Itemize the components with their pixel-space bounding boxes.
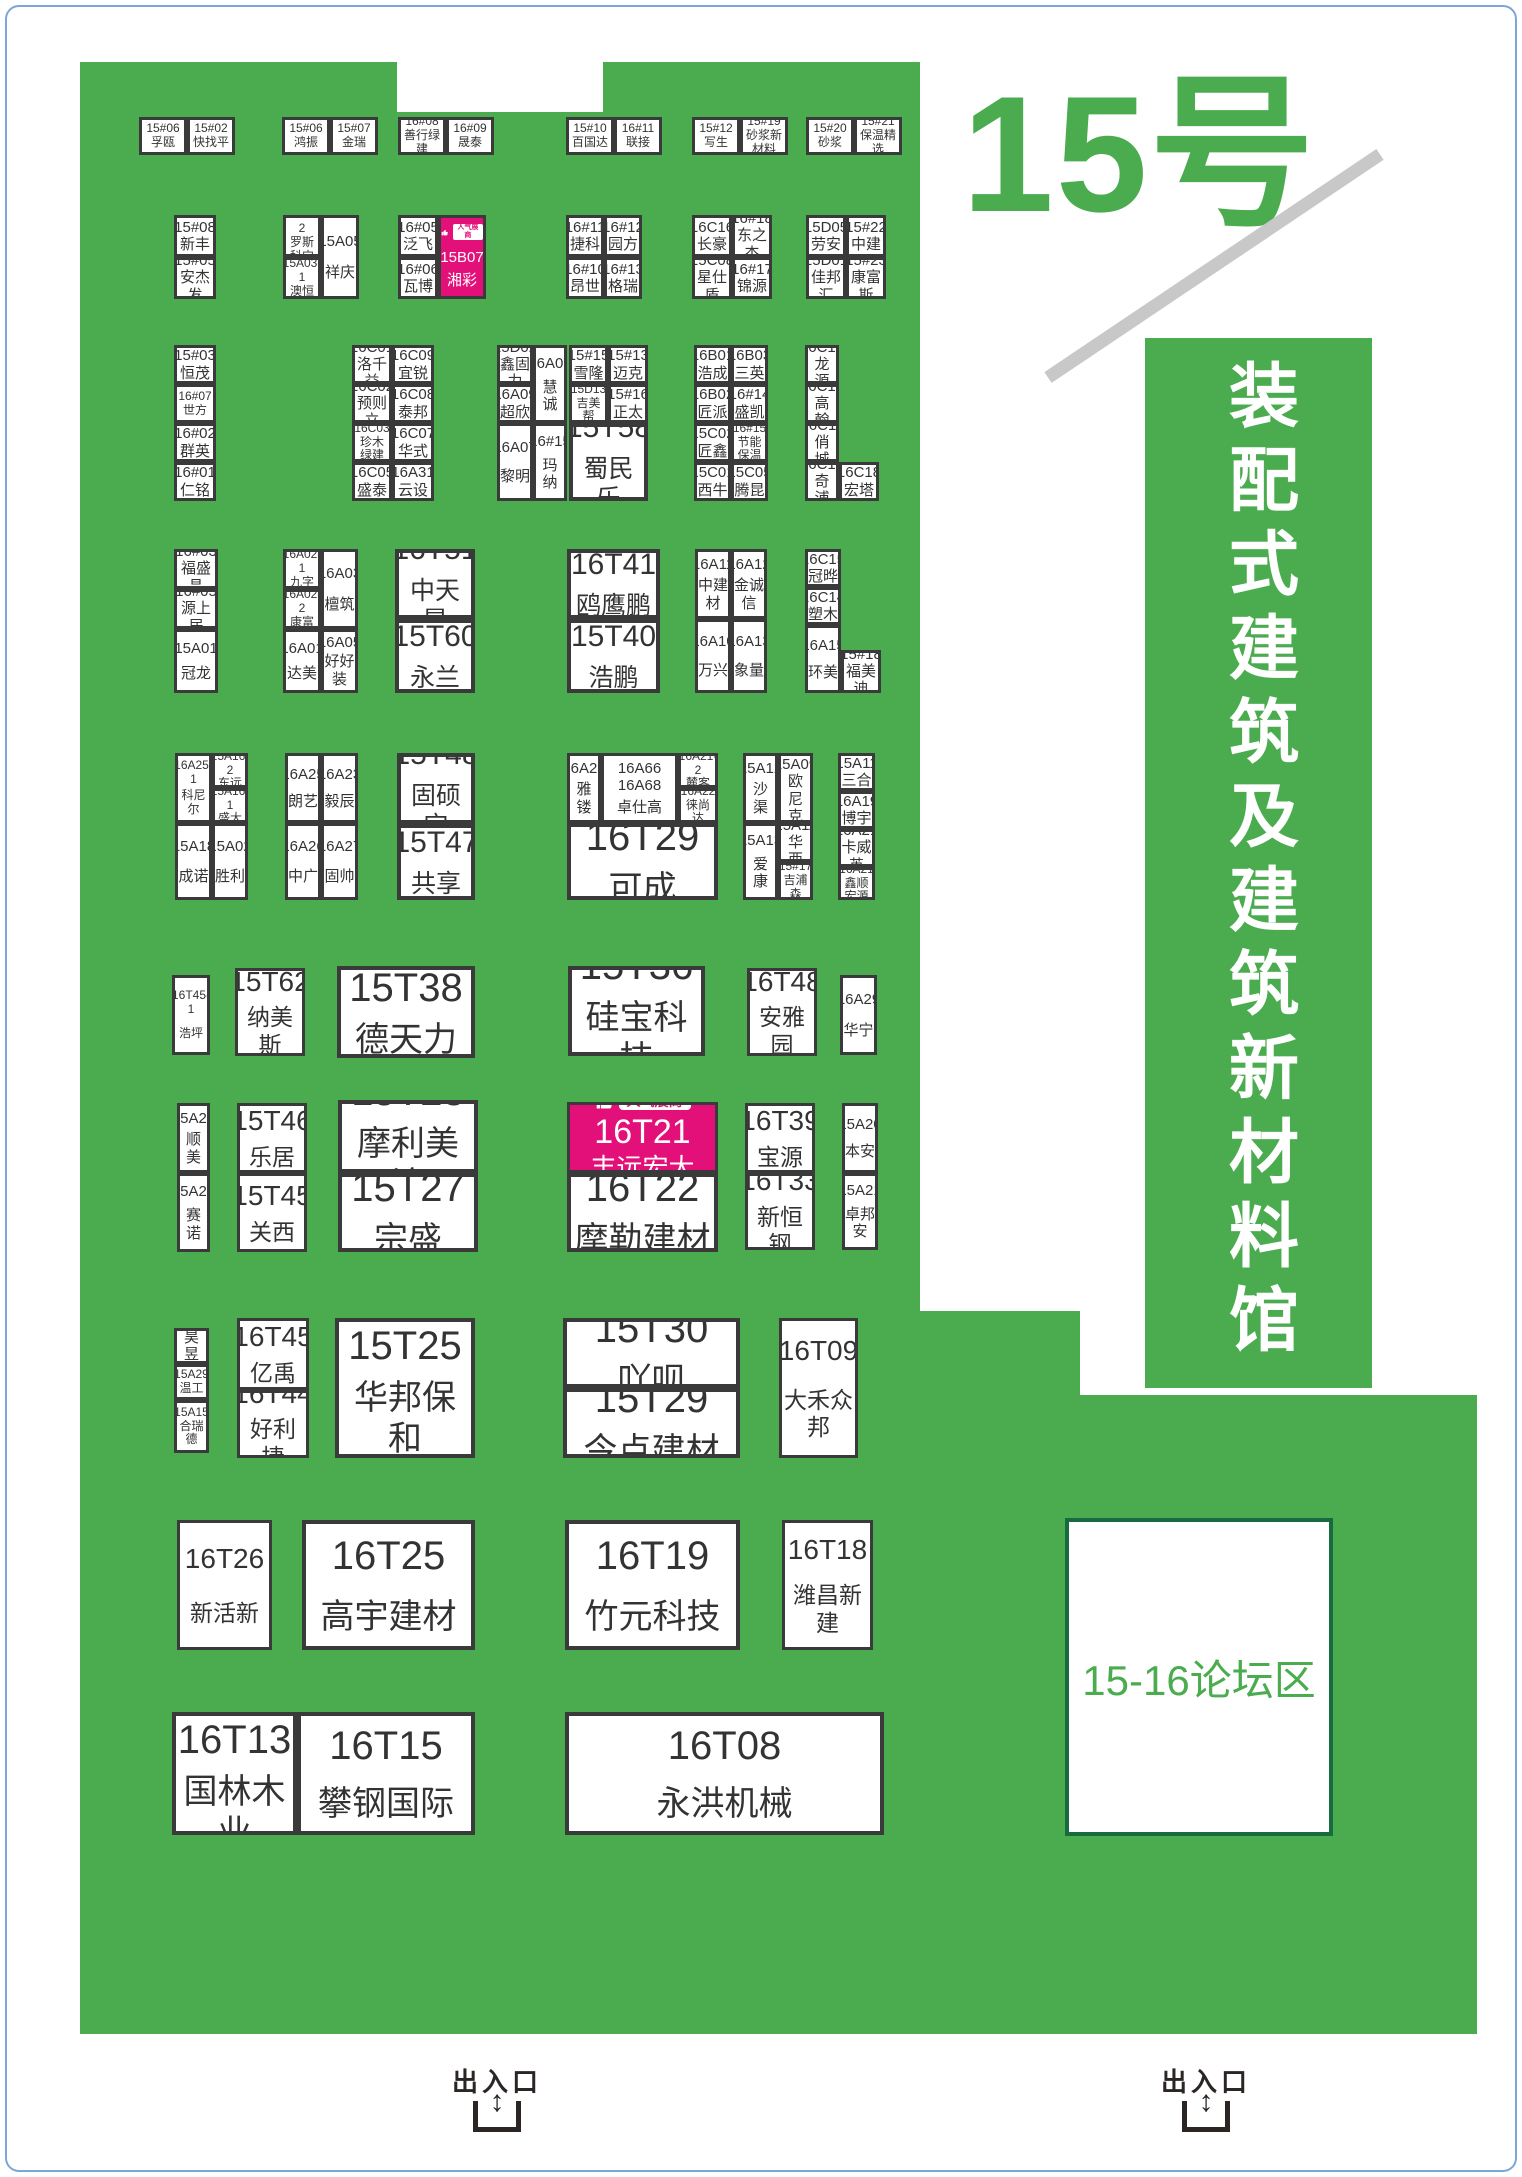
booth-company-name: 砂浆新材料 xyxy=(743,129,785,155)
booth-code: 15T29 xyxy=(595,1388,708,1423)
booth-code: 16A11 xyxy=(695,556,731,573)
booth-code: 15A27 xyxy=(177,1183,210,1200)
booth-company-name: 节能保温 xyxy=(734,436,765,462)
booth-code: 15T47 xyxy=(397,825,475,861)
booth-code: 15A16-2 xyxy=(212,753,248,777)
booth-company-name: 金瑞 xyxy=(342,136,366,150)
booth-code: 16T19 xyxy=(596,1532,709,1580)
booth-company-name: 冠龙 xyxy=(181,665,211,682)
booth-code: 15C02 xyxy=(694,425,731,442)
booth-16T09: 16T09大禾众邦 xyxy=(779,1318,858,1458)
booth-company-name: 中广 xyxy=(288,868,318,885)
booth-code: 16C15 xyxy=(805,551,841,568)
booth-15T47: 15T47共享 xyxy=(397,824,475,900)
booth-company-name: 高翰 xyxy=(808,395,836,423)
booth-16A06: 16A06慧诚 xyxy=(533,345,567,423)
booth-company-name: 华西 xyxy=(781,834,810,862)
booth-16C18: 16C18宏塔 xyxy=(839,462,879,501)
booth-code: 16T09 xyxy=(779,1334,858,1368)
booth-16C12: 16C12高翰 xyxy=(805,384,839,423)
booth-company-name: 俏城 xyxy=(808,434,836,462)
booth-code: 15T28 xyxy=(351,1100,464,1116)
booth-company-name: 湘彩 xyxy=(447,272,477,289)
booth-code: 16C09 xyxy=(392,347,434,364)
booth-15D13: 15D13吉美帮 xyxy=(569,384,608,423)
booth-15T27: 15T27宗盛 xyxy=(338,1173,478,1252)
booth-code: 15T58 xyxy=(569,423,648,446)
hall-name-text: 装配式建筑及建筑新材料馆 xyxy=(1224,359,1294,1367)
booth-company-name: 丰远宏大 xyxy=(590,1154,694,1173)
booth-code: 15T45 xyxy=(237,1179,307,1213)
booth-code: 15#23 xyxy=(846,257,886,269)
booth-15A23: 15A23顺美 xyxy=(177,1103,210,1173)
booth-code: 15A03-1 xyxy=(283,257,321,285)
booth-company-name: 瓦博 xyxy=(403,278,433,295)
booth-code: 16A20 xyxy=(567,760,601,777)
booth-code: 15C08 xyxy=(692,257,732,269)
booth-code: 16C11 xyxy=(805,423,839,434)
booth-15#20: 15#20砂浆 xyxy=(806,117,854,155)
booth-company-name: 三英 xyxy=(734,365,764,382)
booth-code: 16#13 xyxy=(604,261,642,278)
booth-code: 15C05 xyxy=(731,464,768,481)
booth-code: 15#13 xyxy=(608,347,648,364)
booth-16#11: 16#11联接 xyxy=(614,117,662,155)
booth-code: 16T51 xyxy=(395,549,475,568)
booth-code: 15T40 xyxy=(571,619,656,655)
booth-16A12: 16A12金诚信 xyxy=(731,549,767,619)
booth-15A16-2: 15A16-2东远 xyxy=(212,753,248,788)
booth-16#10: 16#10昂世 xyxy=(566,257,604,299)
booth-code: 15A11 xyxy=(838,755,875,772)
booth-15T28: 15T28摩利美涂 xyxy=(338,1100,478,1173)
booth-16A07: 16A07黎明 xyxy=(497,423,533,501)
booth-code: 16A02-1 xyxy=(283,549,321,576)
booth-company-name: 新丰 xyxy=(180,236,210,253)
popular-exhibitor-badge: 人气展商 xyxy=(595,1102,691,1111)
booth-code: 16A13 xyxy=(731,633,767,650)
booth-code: 16T33 xyxy=(745,1173,815,1198)
booth-code: 16A01 xyxy=(283,640,321,657)
booth-company-name: 好利捷 xyxy=(240,1416,306,1458)
booth-16B03: 16B03三英 xyxy=(731,345,768,384)
booth-code: 16C03 xyxy=(354,423,389,436)
booth-company-name: 檀筑 xyxy=(324,596,354,613)
booth-company-name: 百国达 xyxy=(572,136,608,150)
booth-16C10: 16C10奇浦 xyxy=(805,462,839,501)
booth-company-name: 爱康 xyxy=(746,856,775,891)
hall-top-notch xyxy=(397,56,603,112)
booth-code: 15#20 xyxy=(813,122,846,136)
booth-company-name: 毅辰 xyxy=(324,793,354,810)
booth-code: 16T41 xyxy=(571,549,656,583)
booth-code: 16#05 xyxy=(398,219,438,236)
booth-company-name: 合瑞德 xyxy=(177,1420,206,1448)
booth-15A03-1: 15A03-1澳恒 xyxy=(283,257,321,299)
booth-15T45: 15T45关西 xyxy=(237,1173,307,1252)
booth-company-name: 高宇建材 xyxy=(321,1597,457,1638)
booth-16T15: 16T15攀钢国际 xyxy=(297,1712,475,1835)
booth-16A27: 16A27固帅 xyxy=(321,823,358,900)
booth-company-name: 联接 xyxy=(626,136,650,150)
booth-code: 15A16-1 xyxy=(212,788,248,812)
booth-16A22: 16A22徕尚达 xyxy=(678,788,718,823)
booth-company-name: 乐居 xyxy=(249,1144,295,1172)
booth-15T58: 15T58蜀民乐 xyxy=(569,423,648,501)
booth-15C08: 15C08星仕盾 xyxy=(692,257,732,299)
booth-15C02: 15C02匠鑫 xyxy=(694,423,731,462)
booth-15#17: 15#17吉浦森 xyxy=(778,862,813,900)
booth-code: 15T48 xyxy=(397,753,475,773)
booth-code: 16A26 xyxy=(285,838,321,855)
floor-plan-hall-15: 15号 装配式建筑及建筑新材料馆 15-16论坛区 15#06孚瓯15#02快找… xyxy=(0,0,1522,2177)
booth-code: 16A19 xyxy=(838,793,875,810)
booth-company-name: 预则立 xyxy=(355,395,389,423)
booth-15#23: 15#23康富斯 xyxy=(846,257,886,299)
booth-company-name: 迈克 xyxy=(613,365,643,382)
booth-code: 16T44 xyxy=(237,1390,309,1410)
booth-company-name: 华宁 xyxy=(843,1022,873,1039)
booth-16C13: 16C13龙源 xyxy=(805,345,839,384)
booth-15T25: 15T25华邦保和 xyxy=(335,1318,475,1458)
booth-company-name: 三合 xyxy=(841,772,871,789)
booth-company-name: 仁铭 xyxy=(180,482,210,499)
booth-code: 15B07 xyxy=(440,249,483,266)
booth-company-name: 宜锐 xyxy=(398,365,428,382)
booth-company-name: 亿禹 xyxy=(250,1360,296,1388)
booth-15A15: 15A15合瑞德 xyxy=(174,1400,209,1453)
booth-code: 16T39 xyxy=(745,1104,815,1138)
booth-company-name: 昂世 xyxy=(570,278,600,295)
booth-code: 16#06 xyxy=(398,261,438,278)
booth-company-name: 鸥鹰鹏 xyxy=(576,591,651,619)
booth-company-name: 东远 xyxy=(218,777,242,788)
booth-company-name: 德天力 xyxy=(355,1020,457,1058)
booth-15A18: 15A18成诺 xyxy=(175,823,212,900)
booth-company-name: 洛千益 xyxy=(355,356,389,384)
booth-15A20: 15A20本安 xyxy=(842,1103,878,1173)
hall-right-step xyxy=(920,1311,1080,1401)
booth-16T44: 16T44好利捷 xyxy=(237,1390,309,1458)
booth-company-name: 达美 xyxy=(287,665,317,682)
booth-code: 16A31 xyxy=(392,464,434,481)
booth-company-name: 万兴 xyxy=(698,662,728,679)
booth-company-name: 匠鑫 xyxy=(697,443,727,460)
booth-company-name: 胜利 xyxy=(215,868,245,885)
booth-company-name: 澳恒 xyxy=(290,285,314,299)
booth-company-name: 新活新 xyxy=(190,1600,259,1628)
booth-15#03: 15#03恒茂 xyxy=(174,345,216,384)
booth-code: 16T08 xyxy=(668,1722,781,1770)
booth-16A66 16A68: 16A66 16A68卓仕高 xyxy=(601,753,678,823)
booth-company-name: 西牛 xyxy=(697,482,727,499)
booth-16#18: 16#18东之杰 xyxy=(732,215,772,257)
booth-16C07: 16C07华式 xyxy=(392,423,434,462)
booth-company-name: 匠派 xyxy=(697,404,727,421)
popular-exhibitor-badge-label: 人气展商 xyxy=(453,224,483,240)
booth-company-name: 卡威英 xyxy=(841,839,872,867)
booth-company-name: 快找平 xyxy=(193,136,229,150)
booth-15T29: 15T29今点建材 xyxy=(563,1388,740,1458)
booth-company-name: 盛凯 xyxy=(734,404,764,421)
booth-company-name: 安杰发 xyxy=(177,269,213,299)
booth-15#08: 15#08新丰 xyxy=(174,215,216,257)
booth-code: 16A06 xyxy=(533,355,567,372)
booth-15T46: 15T46乐居 xyxy=(237,1103,307,1173)
booth-15#02: 15#02快找平 xyxy=(187,117,235,155)
booth-15#16: 15#16正太 xyxy=(608,384,648,423)
booth-16#15: 16#15节能保温 xyxy=(731,423,768,462)
booth-16#05: 16#05源上居 xyxy=(174,589,218,629)
booth-15A21: 15A21卓邦安 xyxy=(842,1173,878,1250)
booth-company-name: 卓邦安 xyxy=(845,1206,875,1241)
booth-16T39: 16T39宝源 xyxy=(745,1103,815,1173)
booth-16T48: 16T48安雅园 xyxy=(747,968,817,1056)
booth-16A21-2: 16A21-2麓客 xyxy=(678,753,718,788)
booth-16T51: 16T51中天晟 xyxy=(395,549,475,619)
booth-code: 15#22 xyxy=(846,219,886,236)
booth-15#13: 15#13迈克 xyxy=(608,345,648,384)
booth-company-name: 锦源 xyxy=(737,278,767,295)
booth-company-name: 群英 xyxy=(180,443,210,460)
booth-company-name: 朗艺 xyxy=(288,793,318,810)
booth-company-name: 腾昆 xyxy=(734,482,764,499)
booth-company-name: 吉浦森 xyxy=(781,874,810,900)
booth-16#12: 16#12园方 xyxy=(604,215,642,257)
booth-code: 15#06 xyxy=(289,122,322,136)
booth-16A02-1: 16A02-1九字 xyxy=(283,549,321,589)
booth-company-name: 科尼尔 xyxy=(178,789,209,817)
booth-15A29: 15A29温工 xyxy=(174,1364,209,1400)
booth-company-name: 罗斯科宁 xyxy=(286,236,318,257)
booth-company-name: 共享 xyxy=(411,869,461,899)
booth-code: 15#12 xyxy=(699,122,732,136)
booth-company-name: 环美 xyxy=(808,664,838,681)
booth-16A21: 16A21卡威英 xyxy=(838,829,875,867)
booth-15#12: 15#12写生 xyxy=(692,117,740,155)
booth-company-name: 雅镂 xyxy=(570,781,598,816)
booth-code: 16A25 xyxy=(285,766,321,783)
booth-code: 15A03-2 xyxy=(283,215,321,236)
booth-company-name: 中天晟 xyxy=(399,576,471,619)
booth-company-name: 潍昌新建 xyxy=(785,1582,870,1637)
booth-company-name: 顺美 xyxy=(180,1131,207,1166)
booth-code: 15D01 xyxy=(806,257,846,269)
booth-company-name: 塑木 xyxy=(808,606,838,623)
booth-code: 16C14 xyxy=(805,589,841,606)
booth-code: 16A27 xyxy=(321,838,358,855)
booth-code: 15#07 xyxy=(337,122,370,136)
booth-company-name: 康富斯 xyxy=(849,269,883,299)
booth-code: 16A03 xyxy=(321,565,358,582)
booth-15D01: 15D01佳邦汇 xyxy=(806,257,846,299)
booth-15T30: 15T30吖呗 xyxy=(563,1318,740,1388)
booth-company-name: 新恒钢 xyxy=(748,1204,812,1250)
booth-code: 15A21 xyxy=(842,1182,878,1199)
booth-16A11: 16A11中建材 xyxy=(695,549,731,619)
booth-company-name: 赛诺 xyxy=(180,1207,207,1242)
hall-number-title: 15号 xyxy=(962,72,1362,252)
booth-code: 15A11 xyxy=(778,823,813,834)
hall-name-banner: 装配式建筑及建筑新材料馆 xyxy=(1145,338,1372,1388)
booth-code: 15A12 xyxy=(743,760,778,777)
booth-code: 15#06 xyxy=(146,122,179,136)
booth-code: 16#02 xyxy=(174,425,216,442)
booth-16A01: 16A01达美 xyxy=(283,629,321,693)
booth-code: 15A20 xyxy=(842,1116,878,1133)
booth-code: 16A29 xyxy=(840,991,877,1008)
booth-company-name: 格瑞 xyxy=(608,278,638,295)
booth-16#15: 16#15玛纳 xyxy=(533,423,567,501)
booth-15#06: 15#06孚瓯 xyxy=(139,117,187,155)
booth-code: 16T45 xyxy=(237,1320,309,1354)
booth-15A05: 15A05祥庆 xyxy=(321,215,359,299)
booth-company-name: 福美迪 xyxy=(844,663,878,693)
booth-15D05: 15D05劳安 xyxy=(806,215,846,257)
booth-15A12: 15A12沙渠 xyxy=(743,753,778,823)
booth-15T38: 15T38德天力 xyxy=(337,966,475,1058)
forum-area-label: 15-16论坛区 xyxy=(1082,1647,1315,1708)
booth-company-name: 福盛昌 xyxy=(177,560,215,589)
booth-16A19: 16A19博宇 xyxy=(838,791,875,829)
booth-16T19: 16T19竹元科技 xyxy=(565,1520,740,1650)
booth-code: 16#03 xyxy=(175,549,217,560)
booth-code: 16#10 xyxy=(566,261,604,278)
booth-15#05: 15#05安杰发 xyxy=(174,257,216,299)
booth-code: 16#01 xyxy=(174,464,216,481)
booth-code: 16T22 xyxy=(586,1173,699,1212)
booth-code: 16B03 xyxy=(731,347,768,364)
booth-code: 15C01 xyxy=(694,464,731,481)
booth-15T62: 15T62纳美斯 xyxy=(235,968,305,1056)
booth-15#15: 15#15雪隆 xyxy=(569,345,608,384)
booth-company-name: 雪隆 xyxy=(573,365,603,382)
booth-code: 15T27 xyxy=(351,1173,464,1212)
booth-company-name: 摩利美涂 xyxy=(342,1124,474,1173)
booth-company-name: 鑫固力 xyxy=(500,356,530,384)
booth-code: 15#05 xyxy=(174,257,216,269)
booth-code: 15A05 xyxy=(321,233,359,250)
booth-company-name: 华邦保和 xyxy=(339,1378,471,1458)
booth-company-name: 昊昱 xyxy=(177,1329,206,1364)
booth-code: 16A15 xyxy=(805,637,841,654)
booth-company-name: 硅宝科技 xyxy=(572,998,701,1056)
booth-company-name: 劳安 xyxy=(811,236,841,253)
booth-16B01: 16B01浩成 xyxy=(694,345,731,384)
booth-company-name: 冠晔 xyxy=(808,568,838,585)
booth-code: 16C18 xyxy=(839,464,879,481)
booth-code: 16#11 xyxy=(622,122,654,136)
booth-company-name: 固帅 xyxy=(324,868,354,885)
booth-company-name: 摩勒建材 xyxy=(575,1220,711,1252)
booth-16C01: 16C01洛千益 xyxy=(352,345,392,384)
thumbs-up-icon xyxy=(441,228,449,237)
booth-15A27: 15A27赛诺 xyxy=(177,1173,210,1252)
booth-16C15: 16C15冠晔 xyxy=(805,549,841,587)
booth-16A13: 16A13象量 xyxy=(731,619,767,693)
booth-company-name: 博宇 xyxy=(841,810,871,827)
booth-code: 15T25 xyxy=(348,1322,461,1370)
booth-16T41: 16T41鸥鹰鹏 xyxy=(567,549,660,619)
booth-code: 16A12 xyxy=(731,556,767,573)
booth-company-name: 恒茂 xyxy=(180,365,210,382)
booth-company-name: 泛飞 xyxy=(403,236,433,253)
booth-16T26: 16T26新活新 xyxy=(177,1520,272,1650)
booth-company-name: 大禾众邦 xyxy=(782,1387,855,1442)
booth-code: 15A18 xyxy=(175,838,212,855)
booth-16T45-1: 16T45-1浩坪 xyxy=(172,975,210,1055)
booth-16C02: 16C02预则立 xyxy=(352,384,392,423)
booth-code: 16C16 xyxy=(692,219,732,236)
booth-code: 16A07 xyxy=(497,439,533,456)
booth-company-name: 奇浦 xyxy=(808,473,836,501)
booth-16A29: 16A29华宁 xyxy=(840,975,877,1055)
booth-company-name: 吖呗 xyxy=(618,1361,686,1388)
booth-16A05: 16A05好好装 xyxy=(321,629,358,693)
booth-code: 16#17 xyxy=(732,261,772,278)
booth-company-name: 象量 xyxy=(734,662,764,679)
exit-gate-icon: ↕ xyxy=(1182,2101,1230,2132)
booth-16C16: 16C16长豪 xyxy=(692,215,732,257)
booth-company-name: 星仕盾 xyxy=(695,269,729,299)
booth-company-name: 固硕宝 xyxy=(401,781,471,825)
booth-code: 16A02-2 xyxy=(283,589,321,616)
booth-company-name: 蜀民乐 xyxy=(573,454,644,501)
booth-code: 16T13 xyxy=(178,1716,291,1764)
booth-company-name: 写生 xyxy=(704,136,728,150)
booth-code: 15#02 xyxy=(194,122,227,136)
booth-company-name: 纳美斯 xyxy=(238,1004,302,1056)
forum-area: 15-16论坛区 xyxy=(1065,1518,1333,1836)
booth-company-name: 永兰 xyxy=(410,663,460,693)
booth-16T13: 16T13国林木业 xyxy=(172,1712,297,1835)
booth-15#06: 15#06鸿振 xyxy=(282,117,330,155)
booth-company-name: 欧尼克 xyxy=(781,773,810,823)
booth-company-name: 成诺 xyxy=(178,868,208,885)
booth-company-name: 浩坪 xyxy=(179,1027,203,1041)
booth-code: 15T60 xyxy=(395,619,475,655)
booth-16A20: 16A20雅镂 xyxy=(567,753,601,823)
booth-16T08: 16T08永洪机械 xyxy=(565,1712,884,1835)
popular-exhibitor-badge: 人气展商 xyxy=(441,224,483,240)
booth-company-name: 盛泰 xyxy=(357,482,387,499)
booth-code: 16T48 xyxy=(747,968,817,998)
booth-16T21: 人气展商16T21丰远宏大 xyxy=(567,1102,718,1173)
booth-16B02: 16B02匠派 xyxy=(694,384,731,423)
booth-company-name: 砂浆 xyxy=(818,136,842,150)
booth-company-name: 保温精选 xyxy=(857,129,899,155)
booth-15T36: 15T36硅宝科技 xyxy=(568,966,705,1056)
booth-16#08: 16#08善行绿建 xyxy=(398,117,446,155)
booth-company-name: 浩鹏 xyxy=(588,663,638,693)
booth-15A11: 15A11三合 xyxy=(838,753,875,791)
booth-company-name: 龙源 xyxy=(808,356,836,384)
booth-code: 16C13 xyxy=(805,345,839,356)
booth-code: 15#18 xyxy=(841,650,881,663)
booth-昊昱: 昊昱 xyxy=(174,1328,209,1364)
booth-16#05: 16#05泛飞 xyxy=(398,215,438,257)
booth-code: 15T46 xyxy=(237,1104,307,1138)
booth-16#02: 16#02群英 xyxy=(174,423,216,462)
booth-15#22: 15#22中建 xyxy=(846,215,886,257)
booth-company-name: 关西 xyxy=(249,1219,295,1247)
booth-16A26: 16A26中广 xyxy=(285,823,321,900)
booth-company-name: 晟泰 xyxy=(458,136,482,150)
booth-15#21: 15#21保温精选 xyxy=(854,117,902,155)
booth-code: 16C08 xyxy=(392,386,434,403)
booth-16A31: 16A31云设 xyxy=(392,462,434,501)
booth-company-name: 宏塔 xyxy=(844,482,874,499)
